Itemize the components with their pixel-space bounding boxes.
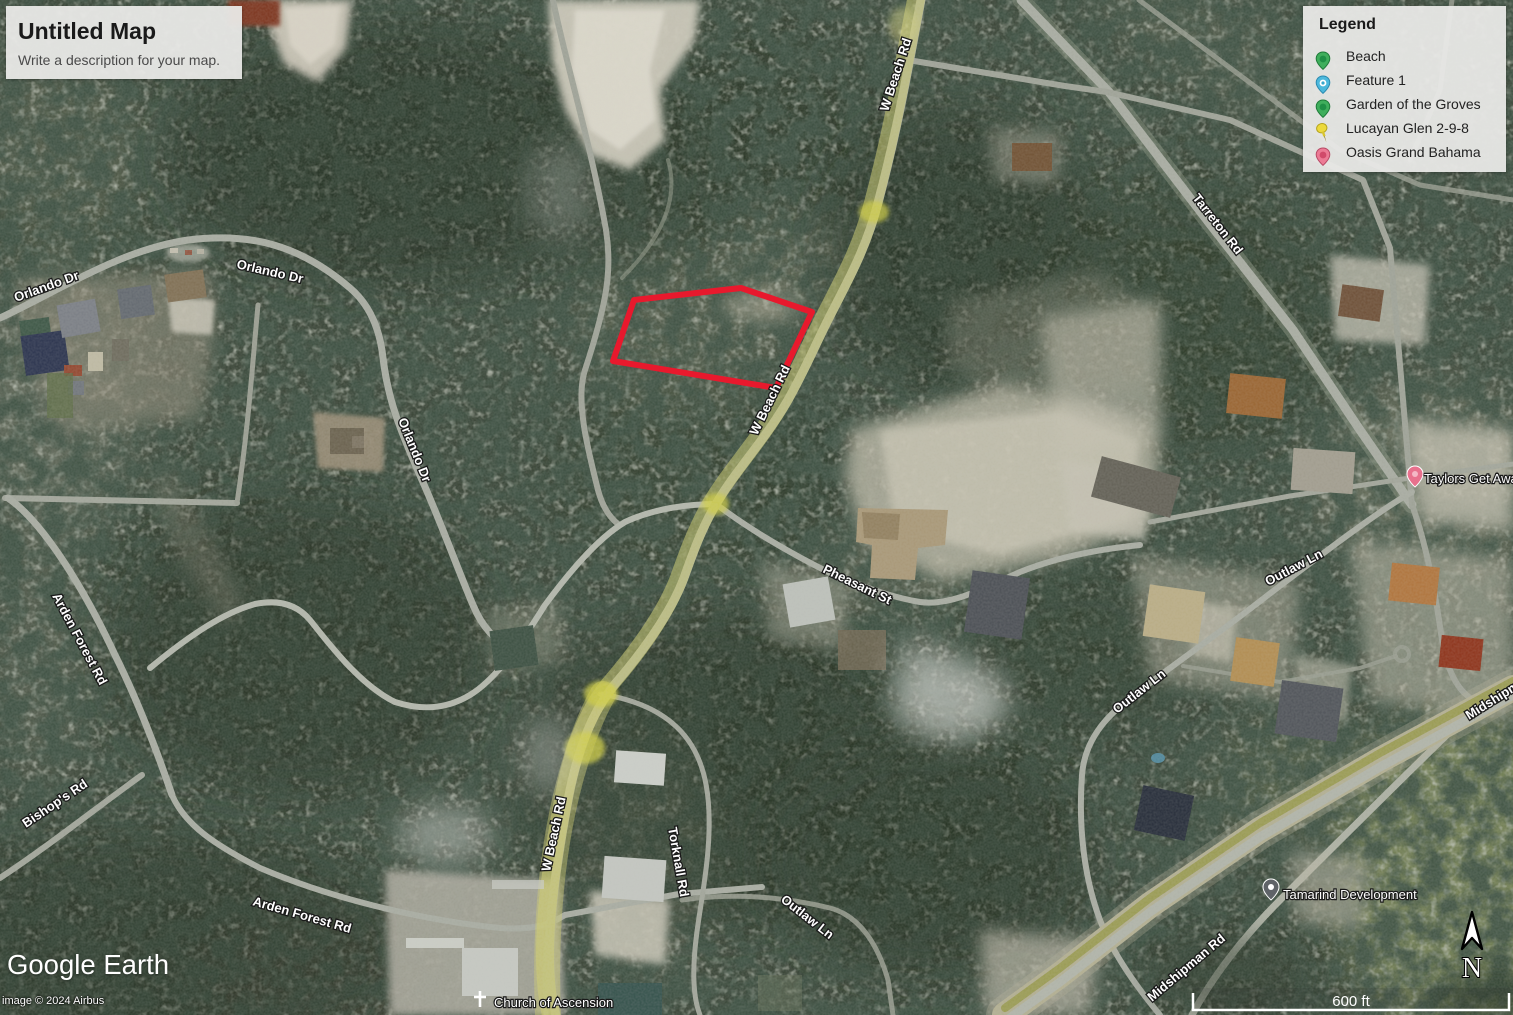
svg-text:N: N xyxy=(1462,953,1482,984)
svg-text:600 ft: 600 ft xyxy=(1332,993,1370,1010)
svg-text:Tamarind Development: Tamarind Development xyxy=(1283,887,1417,902)
svg-text:Church of Ascension: Church of Ascension xyxy=(494,995,613,1010)
svg-text:Taylors Get Away: Taylors Get Away xyxy=(1424,471,1513,486)
